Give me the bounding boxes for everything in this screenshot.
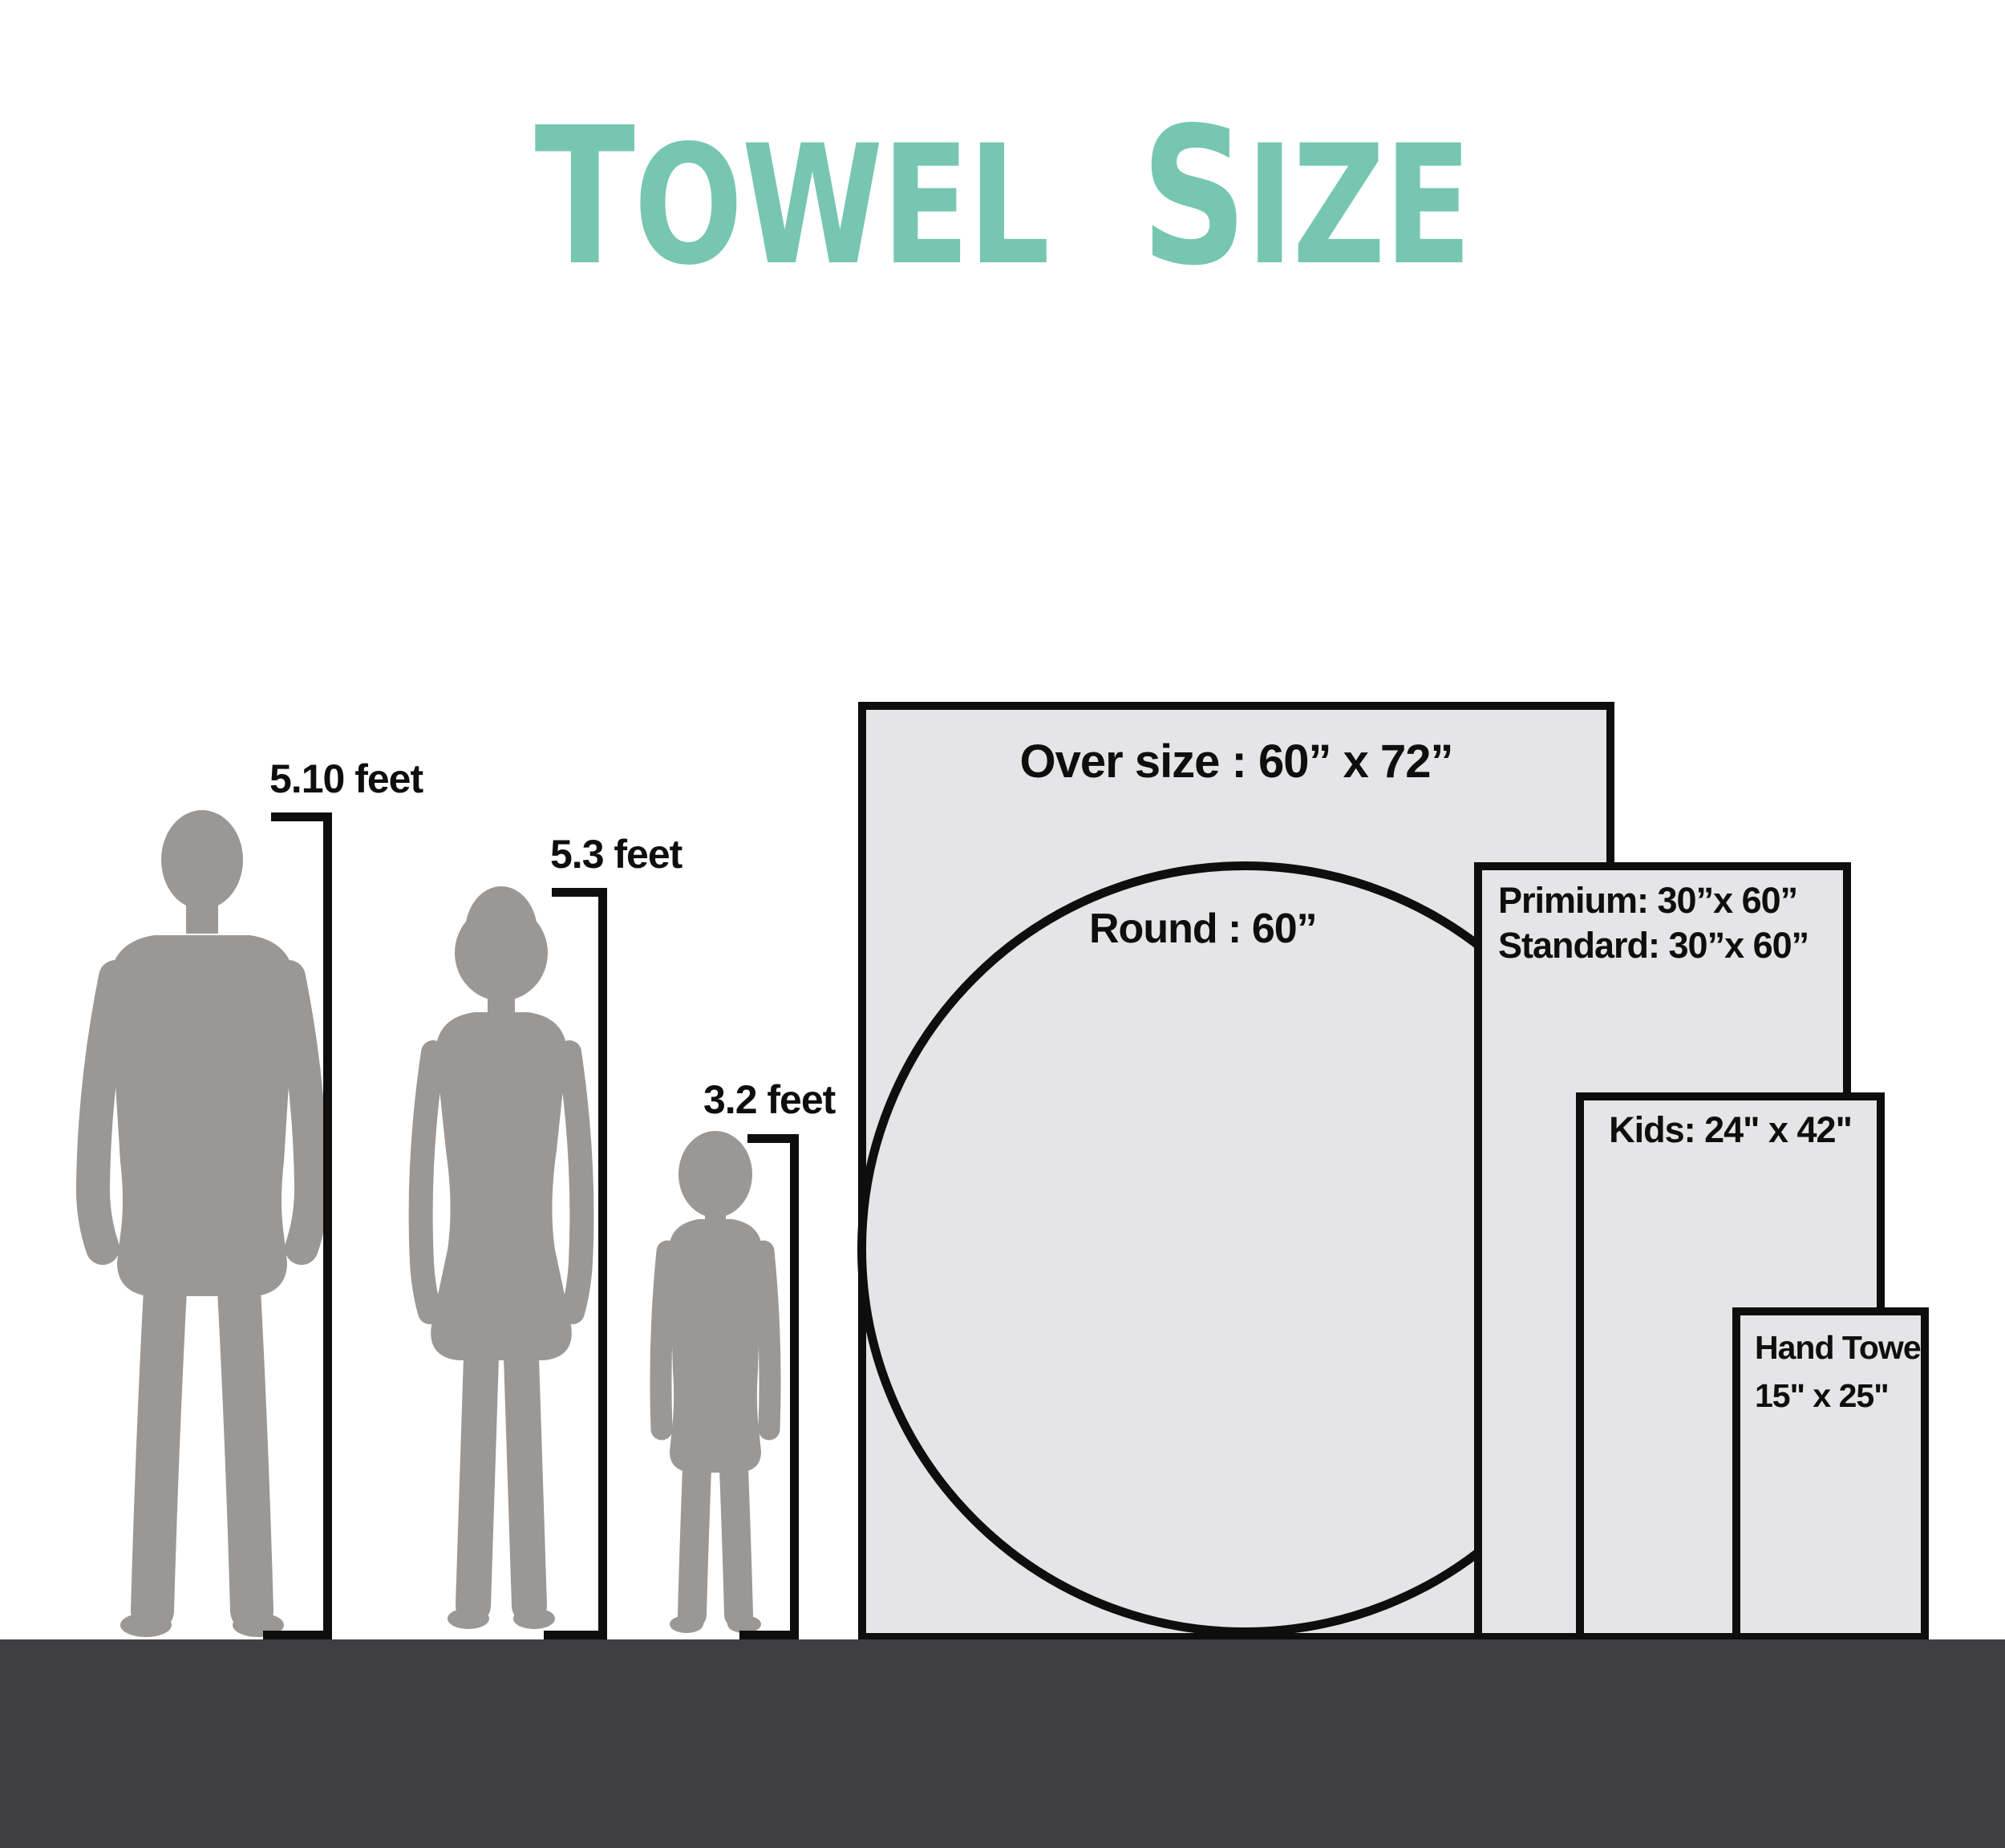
child-marker-vertical [790,1134,799,1639]
woman-marker-vertical [598,888,607,1639]
hand-towel-rect: Hand Towel 15" x 25" [1732,1307,1929,1641]
title-word-towel: TOWEL [534,103,1048,292]
man-marker-vertical [323,813,332,1639]
child-height-label: 3.2 feet [703,1080,835,1120]
man-silhouette [66,808,338,1639]
child-marker-bottom-tick [739,1631,799,1639]
man-marker-bottom-tick [263,1631,332,1639]
woman-height-label: 5.3 feet [550,834,682,874]
standard-line: Standard: 30”x 60” [1498,923,1809,968]
hand-towel-line: Hand Towel [1755,1323,1929,1372]
round-towel-label: Round : 60” [1089,908,1317,950]
oversize-towel-label: Over size : 60” x 72” [866,739,1606,785]
page-title: TOWEL SIZE [221,103,1784,292]
woman-silhouette [391,884,612,1639]
hand-towel-labels: Hand Towel 15" x 25" [1755,1323,1929,1420]
premium-line: Primium: 30”x 60” [1498,878,1809,923]
title-word-size: SIZE [1141,103,1471,292]
infographic-canvas: TOWEL SIZE 5.10 f [0,0,2005,1848]
man-height-label: 5.10 feet [269,759,423,799]
kids-towel-label: Kids: 24" x 42" [1584,1112,1877,1148]
hand-towel-size-line: 15" x 25" [1755,1372,1929,1420]
floor-bar [0,1639,2005,1848]
woman-marker-bottom-tick [544,1631,607,1639]
premium-towel-labels: Primium: 30”x 60” Standard: 30”x 60” [1498,878,1809,968]
child-silhouette [638,1129,794,1639]
